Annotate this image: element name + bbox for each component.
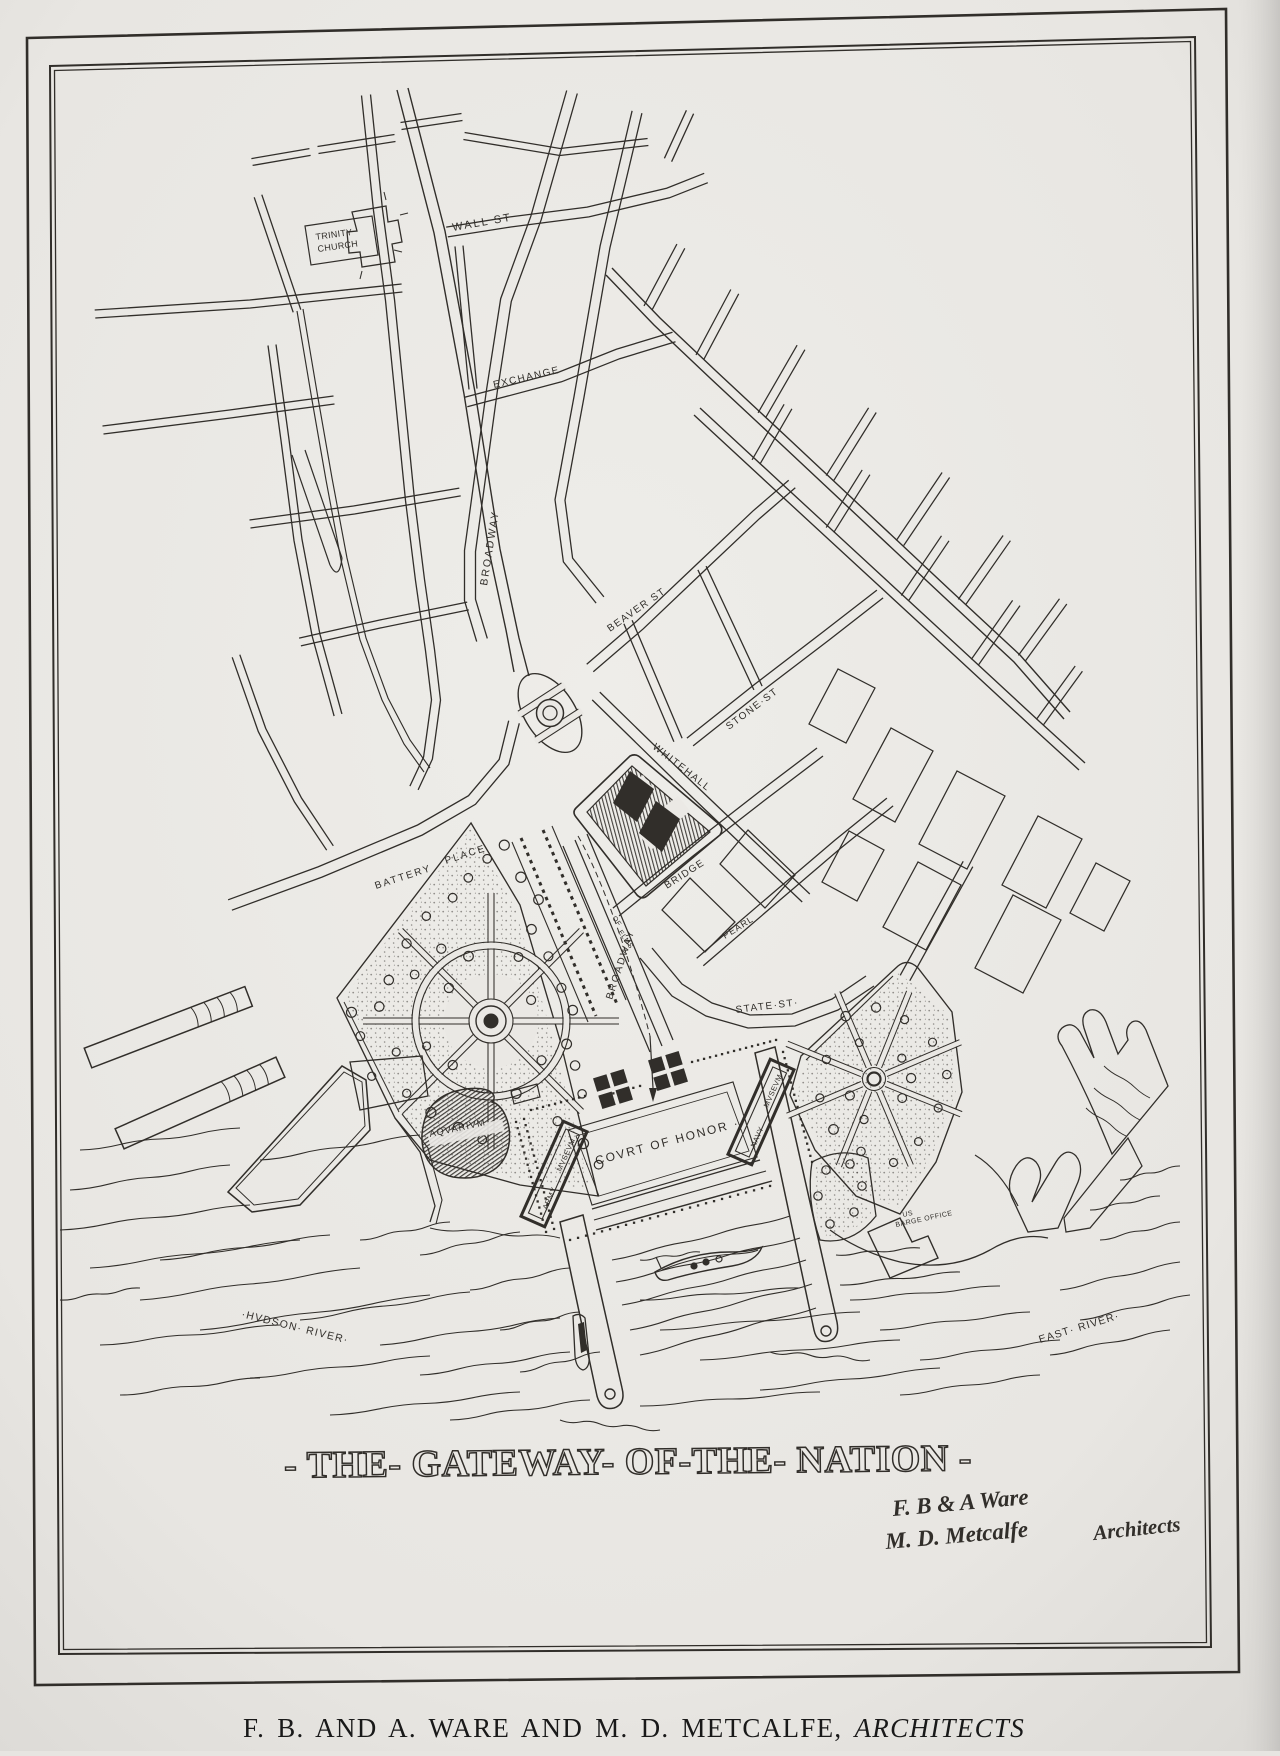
svg-text:- THE- GATEWAY- OF-THE- NATION: - THE- GATEWAY- OF-THE- NATION -	[284, 1437, 972, 1486]
svg-text:F. B. AND A. WARE AND M. D. ME: F. B. AND A. WARE AND M. D. METCALFE, AR…	[243, 1713, 1025, 1743]
